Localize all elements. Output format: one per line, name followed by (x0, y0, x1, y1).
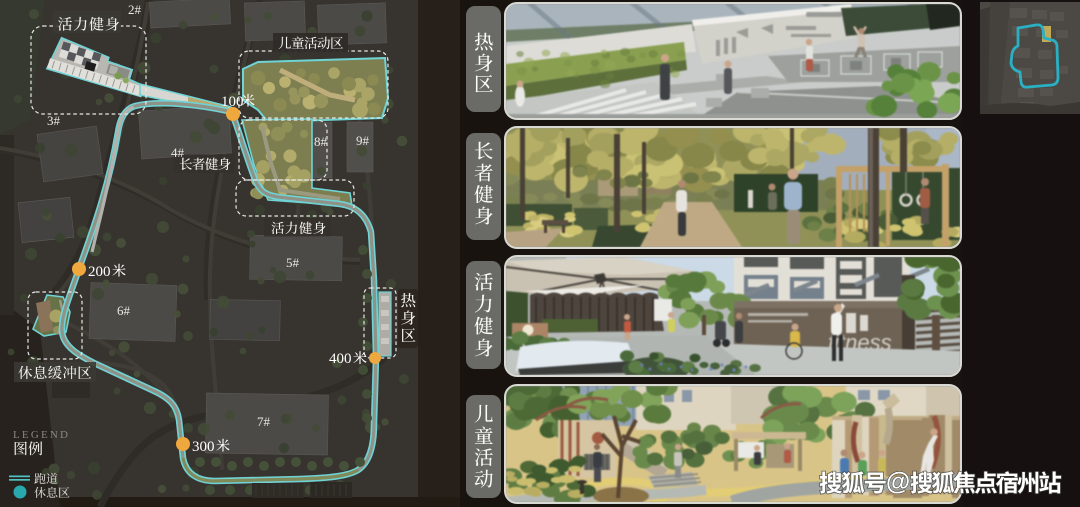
svg-text:7#: 7# (257, 414, 271, 429)
svg-text:2#: 2# (128, 2, 142, 17)
svg-text:4#: 4# (171, 145, 185, 160)
svg-text:8#: 8# (314, 134, 328, 149)
svg-text:LEGEND: LEGEND (13, 429, 70, 441)
svg-text:9#: 9# (356, 133, 370, 148)
svg-text:5#: 5# (286, 255, 300, 270)
svg-text:400: 400 (329, 351, 352, 367)
svg-text:200: 200 (88, 264, 111, 280)
svg-text:300: 300 (192, 439, 215, 455)
svg-text:100: 100 (221, 94, 244, 110)
svg-text:6#: 6# (117, 303, 131, 318)
svg-text:3#: 3# (47, 113, 61, 128)
